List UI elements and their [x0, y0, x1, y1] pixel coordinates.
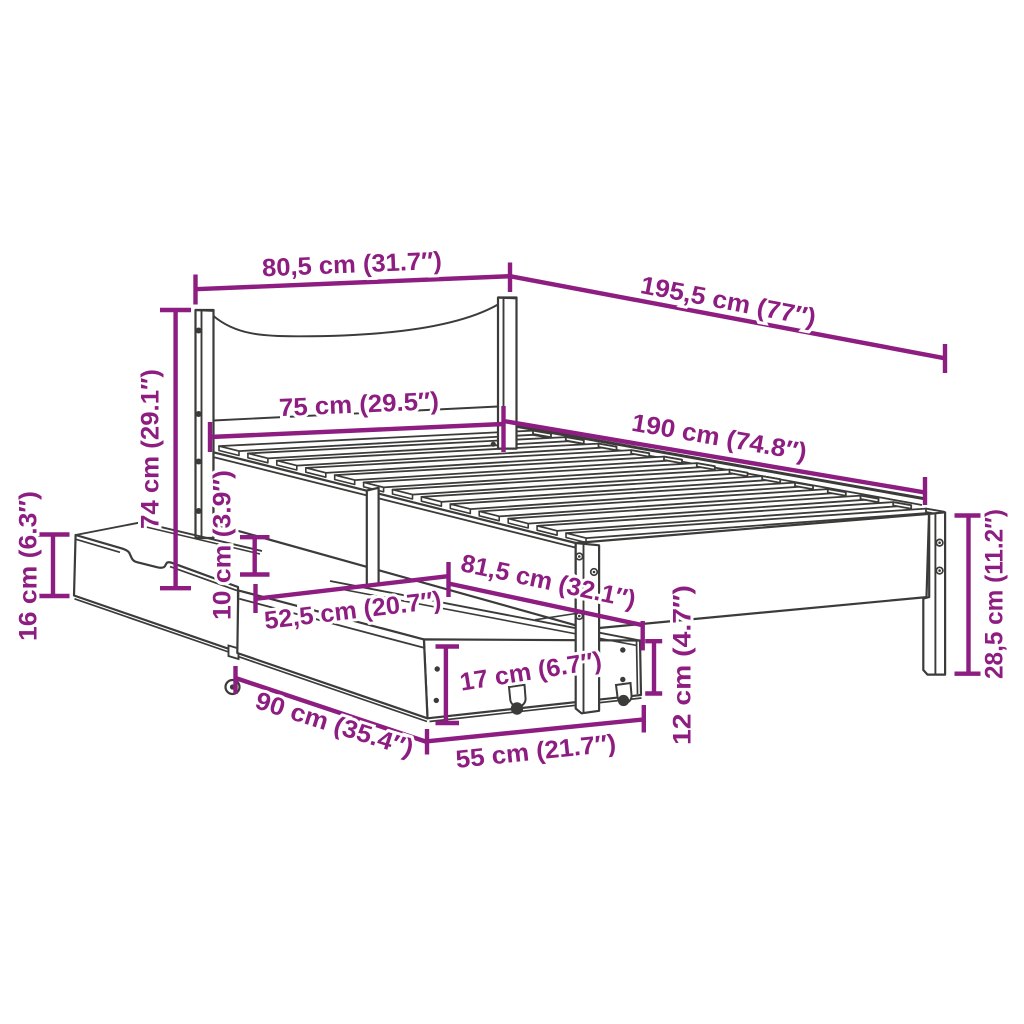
svg-text:10 cm (3.9″): 10 cm (3.9″) [209, 470, 237, 620]
svg-text:74 cm (29.1″): 74 cm (29.1″) [137, 369, 165, 529]
svg-text:16 cm (6.3″): 16 cm (6.3″) [15, 491, 43, 641]
svg-text:28,5 cm (11.2″): 28,5 cm (11.2″) [981, 509, 1009, 679]
svg-text:12 cm (4.7″): 12 cm (4.7″) [669, 585, 697, 745]
